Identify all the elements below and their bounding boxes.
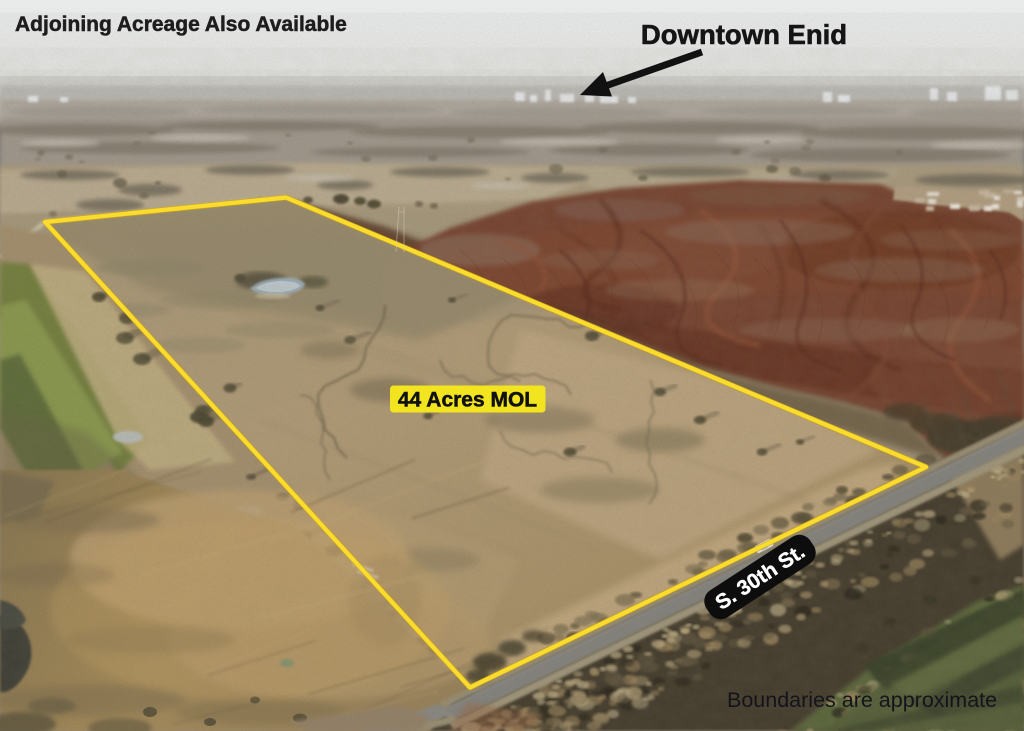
svg-text:44 Acres MOL: 44 Acres MOL xyxy=(398,389,537,412)
svg-text:Boundaries are approximate: Boundaries are approximate xyxy=(727,688,997,712)
svg-text:Downtown Enid: Downtown Enid xyxy=(641,19,847,50)
svg-text:Adjoining Acreage Also Availab: Adjoining Acreage Also Available xyxy=(15,13,347,36)
